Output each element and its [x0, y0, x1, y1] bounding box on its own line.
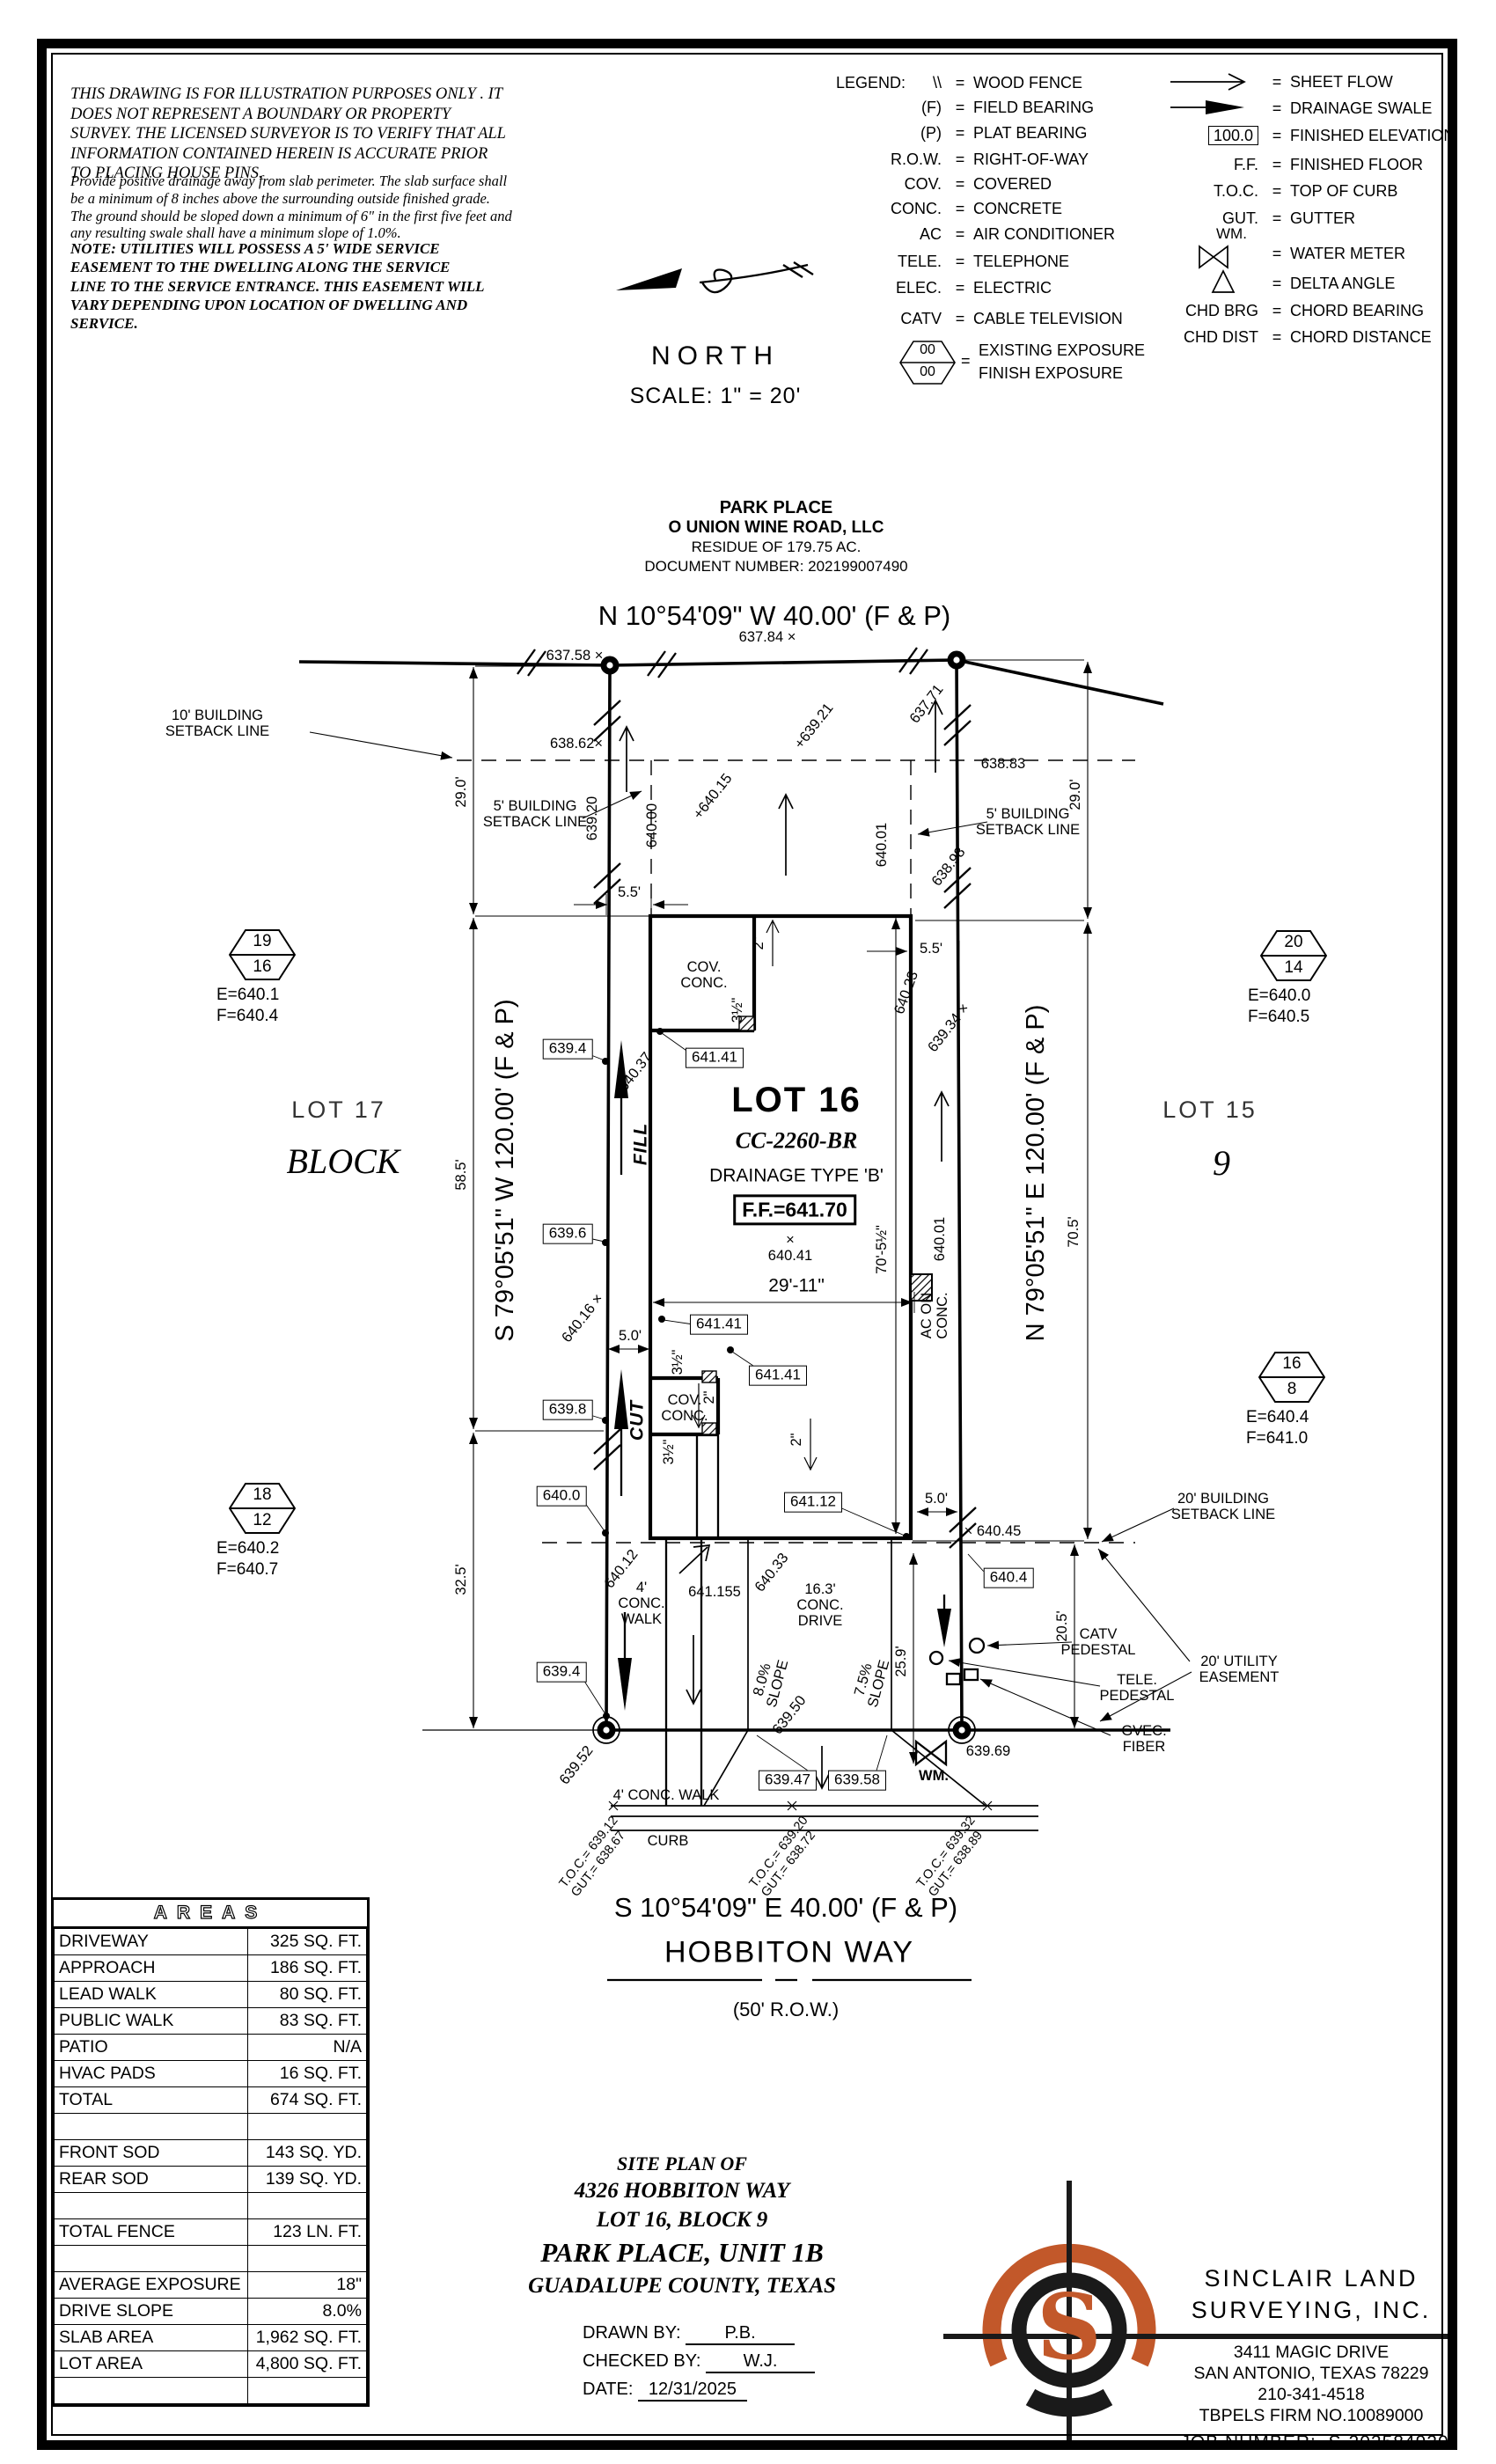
title-subdivision: PARK PLACE, UNIT 1B — [444, 2237, 920, 2269]
areas-row: DRIVEWAY325 SQ. FT. — [55, 1929, 367, 1955]
plat-label: × 640.41 — [768, 1232, 812, 1264]
scale-label: SCALE: 1" = 20' — [630, 384, 802, 409]
adjoiner-document: DOCUMENT NUMBER: 202199007490 — [644, 558, 907, 576]
legend-row: CATVCABLE TELEVISION — [847, 310, 1123, 328]
plat-label: 637.58 × — [546, 648, 604, 664]
legend-sym: CHD DIST — [1160, 328, 1258, 347]
legend-sym: T.O.C. — [1160, 182, 1258, 201]
plat-label: 9 — [1213, 1144, 1230, 1183]
plat-label: 3½" — [670, 1350, 686, 1375]
legend-label: CABLE TELEVISION — [973, 310, 1123, 327]
legend-label: SHEET FLOW — [1290, 73, 1393, 91]
legend-row: TELE.TELEPHONE — [847, 253, 1069, 271]
plat-label: 3½" — [730, 998, 745, 1023]
legend-sym: COV. — [847, 175, 942, 194]
plat-label: N 10°54'09" W 40.00' (F & P) — [598, 601, 951, 631]
areas-row — [55, 2246, 367, 2272]
plat-label: 5.5' — [920, 941, 942, 957]
legend-label: DELTA ANGLE — [1290, 275, 1395, 292]
legend-sym: (F) — [847, 99, 942, 117]
plat-label: FILL — [630, 1123, 650, 1165]
plat-label: CURB — [648, 1833, 689, 1849]
firm-number: TBPELS FIRM NO.10089000 — [1199, 2406, 1424, 2426]
plat-label: 5' BUILDING SETBACK LINE — [976, 806, 1080, 838]
areas-row: HVAC PADS16 SQ. FT. — [55, 2061, 367, 2087]
plat-label: 641.41 — [686, 1048, 744, 1068]
north-arrow-icon — [616, 262, 813, 292]
legend-label: CHORD DISTANCE — [1290, 328, 1432, 346]
existing-elev: E=640.0 — [1248, 986, 1310, 1007]
disclaimer-text: THIS DRAWING IS FOR ILLUSTRATION PURPOSE… — [70, 84, 510, 184]
plat-label: 10' BUILDING SETBACK LINE — [165, 708, 269, 739]
plat-label: COV. CONC. — [680, 959, 727, 991]
plat-label: 640.00 — [644, 803, 660, 847]
plat-label: 70.5' — [1066, 1216, 1082, 1247]
legend-eq: = — [961, 352, 971, 370]
plat-label: 639.8 — [543, 1400, 593, 1420]
legend-row: (F)FIELD BEARING — [847, 99, 1094, 117]
plat-label: 640.01 — [932, 1217, 948, 1261]
legend-row: T.O.C.TOP OF CURB — [1160, 182, 1397, 201]
legend-row: (P)PLAT BEARING — [847, 124, 1087, 143]
areas-row: TOTAL674 SQ. FT. — [55, 2087, 367, 2114]
plat-label: 641.41 — [690, 1315, 748, 1335]
adjoiner-residue: RESIDUE OF 179.75 AC. — [692, 539, 862, 556]
legend-sym: CONC. — [847, 200, 942, 218]
finish-elev: F=640.7 — [216, 1559, 279, 1580]
plat-label: 29'-11" — [768, 1275, 825, 1295]
exposure-marker: 19 16 E=640.1F=640.4 — [229, 928, 296, 981]
title-lot-block: LOT 16, BLOCK 9 — [444, 2208, 920, 2233]
legend-label: WATER METER — [1290, 245, 1405, 262]
finish-elev: F=640.5 — [1248, 1007, 1310, 1028]
title-address: 4326 HOBBITON WAY — [444, 2179, 920, 2204]
areas-row: FRONT SOD143 SQ. YD. — [55, 2140, 367, 2167]
areas-table: AREAS DRIVEWAY325 SQ. FT.APPROACH186 SQ.… — [51, 1897, 370, 2407]
plat-label: 5' BUILDING SETBACK LINE — [483, 798, 587, 830]
wm-sym: WM. — [1216, 225, 1247, 243]
marker-bottom: 8 — [1258, 1380, 1325, 1399]
plat-label: BLOCK — [287, 1142, 400, 1181]
plat-label: 4' CONC. WALK — [618, 1580, 664, 1627]
marker-top: 20 — [1260, 933, 1327, 952]
legend-label: CHORD BEARING — [1290, 302, 1424, 319]
plat-label: 639.4 — [543, 1039, 593, 1060]
legend-label: WOOD FENCE — [973, 74, 1082, 92]
areas-row: LOT AREA4,800 SQ. FT. — [55, 2351, 367, 2378]
marker-bottom: 12 — [229, 1511, 296, 1530]
plat-label: 2" — [751, 936, 766, 950]
plat-label: 58.5' — [453, 1159, 469, 1190]
areas-title: AREAS — [54, 1900, 367, 1928]
firm-phone: 210-341-4518 — [1258, 2385, 1364, 2405]
plat-label: 70'-5½" — [874, 1225, 890, 1274]
title-block: SITE PLAN OF 4326 HOBBITON WAY LOT 16, B… — [444, 2152, 920, 2299]
plat-label: 639.4 — [537, 1662, 587, 1683]
plat-label: 640.4 — [984, 1568, 1034, 1588]
legend-label: AIR CONDITIONER — [973, 225, 1115, 243]
plat-label: 638.62× — [550, 736, 603, 752]
plat-label: F.F.=641.70 — [733, 1194, 856, 1225]
firm-name: SINCLAIR LAND — [1204, 2265, 1418, 2292]
existing-elev: E=640.1 — [216, 985, 279, 1006]
legend-sym: AC — [847, 225, 942, 244]
areas-row: PATION/A — [55, 2035, 367, 2061]
marker-top: 18 — [229, 1485, 296, 1505]
areas-row: PUBLIC WALK83 SQ. FT. — [55, 2008, 367, 2035]
existing-elev: E=640.4 — [1246, 1407, 1309, 1428]
plat-label: 16.3' CONC. DRIVE — [796, 1581, 843, 1629]
job-number: JOB NUMBER: S-202584920 — [1180, 2432, 1448, 2453]
plat-label: 639.20 — [584, 796, 600, 840]
areas-row: REAR SOD139 SQ. YD. — [55, 2167, 367, 2193]
plat-label: 5.0' — [925, 1491, 948, 1507]
legend-sym: CATV — [847, 310, 942, 328]
checked-by-row: CHECKED BY: W.J. — [583, 2351, 815, 2373]
legend-label: DRAINAGE SWALE — [1290, 99, 1432, 117]
finish-elev: F=640.4 — [216, 1006, 279, 1027]
legend-row: WATER METER — [1160, 245, 1405, 263]
exposure-finish: 00 — [899, 364, 956, 380]
areas-row: LEAD WALK80 SQ. FT. — [55, 1982, 367, 2008]
exposure-legend-icon: 00 00 — [899, 340, 956, 385]
legend-label: FIELD BEARING — [973, 99, 1094, 116]
existing-elev: E=640.2 — [216, 1538, 279, 1559]
marker-bottom: 16 — [229, 957, 296, 977]
legend-row: ELEC.ELECTRIC — [847, 279, 1052, 297]
plat-label: 29.0' — [453, 776, 469, 807]
legend-label: GUTTER — [1290, 209, 1355, 227]
plat-label: × 640.45 — [964, 1523, 1022, 1539]
plat-label: 640.01 — [874, 823, 890, 867]
marker-top: 16 — [1258, 1354, 1325, 1374]
plat-label: HOBBITON WAY — [664, 1936, 914, 1969]
areas-row: APPROACH186 SQ. FT. — [55, 1955, 367, 1982]
plat-label: 2" — [788, 1433, 804, 1446]
legend-row: \\WOOD FENCE — [847, 74, 1082, 92]
adjoiner-owner: O UNION WINE ROAD, LLC — [669, 518, 884, 538]
areas-row — [55, 2378, 367, 2404]
legend-label: FINISHED ELEVATION — [1290, 127, 1455, 144]
title-county: GUADALUPE COUNTY, TEXAS — [444, 2274, 920, 2299]
checked-by-value: W.J. — [706, 2351, 815, 2373]
plat-label: 639.47 — [759, 1771, 817, 1791]
legend-sym: R.O.W. — [847, 150, 942, 169]
areas-row — [55, 2193, 367, 2219]
plat-label: CATV PEDESTAL — [1061, 1626, 1136, 1658]
firm-name: SURVEYING, INC. — [1192, 2297, 1432, 2324]
plat-label: 641.155 — [688, 1584, 741, 1600]
plat-label: 32.5' — [453, 1564, 469, 1595]
plat-label: 20' UTILITY EASEMENT — [1199, 1654, 1280, 1685]
legend-sym: CHD BRG — [1160, 302, 1258, 320]
plat-label: LOT 17 — [291, 1097, 386, 1124]
legend-row: R.O.W.RIGHT-OF-WAY — [847, 150, 1089, 169]
wood-fence-icon: \\ — [847, 74, 942, 92]
plat-label: DRAINAGE TYPE 'B' — [709, 1165, 884, 1185]
legend-row: ACAIR CONDITIONER — [847, 225, 1115, 244]
plat-label: 641.12 — [784, 1492, 842, 1513]
plat-label: 641.41 — [749, 1366, 807, 1386]
legend-sym: (P) — [847, 124, 942, 143]
legend-row: 100.0FINISHED ELEVATION — [1160, 127, 1455, 145]
firm-address: 3411 MAGIC DRIVE — [1234, 2343, 1389, 2363]
plat-label: 3½" — [661, 1440, 677, 1465]
plat-label: TELE. PEDESTAL — [1100, 1672, 1175, 1704]
plat-label: LOT 16 — [731, 1081, 862, 1119]
drawn-by-value: P.B. — [686, 2323, 795, 2345]
areas-row: TOTAL FENCE123 LN. FT. — [55, 2219, 367, 2246]
plat-label: N 79°05'51" E 120.00' (F & P) — [1023, 1005, 1051, 1342]
exposure-marker: 16 8 E=640.4F=641.0 — [1258, 1351, 1325, 1404]
legend-row: F.F.FINISHED FLOOR — [1160, 156, 1423, 174]
legend-sym: TELE. — [847, 253, 942, 271]
areas-row: AVERAGE EXPOSURE18" — [55, 2272, 367, 2299]
legend-row: DELTA ANGLE — [1160, 275, 1395, 293]
checked-by-label: CHECKED BY: — [583, 2351, 700, 2371]
plat-label: LOT 15 — [1162, 1097, 1258, 1124]
areas-row — [55, 2114, 367, 2140]
legend-row: SHEET FLOW — [1160, 73, 1393, 92]
date-value: 12/31/2025 — [638, 2380, 747, 2402]
legend-label: CONCRETE — [973, 200, 1062, 217]
plat-label: 639.6 — [543, 1224, 593, 1244]
areas-row: SLAB AREA1,962 SQ. FT. — [55, 2325, 367, 2351]
logo-letter: S — [1037, 2275, 1102, 2380]
plat-label: 4' CONC. WALK — [613, 1787, 720, 1803]
date-label: DATE: — [583, 2380, 633, 2399]
adjoiner-name: PARK PLACE — [720, 498, 833, 518]
legend-row: CHD DISTCHORD DISTANCE — [1160, 328, 1432, 347]
plat-label: S 79°05'51" W 120.00' (F & P) — [492, 999, 520, 1341]
plat-label: CUT — [627, 1400, 647, 1441]
legend-row: COV.COVERED — [847, 175, 1052, 194]
plat-label: S 10°54'09" E 40.00' (F & P) — [614, 1893, 957, 1923]
exposure-existing: 00 — [899, 342, 956, 358]
legend-row: CONC.CONCRETE — [847, 200, 1062, 218]
marker-bottom: 14 — [1260, 958, 1327, 978]
legend-label: COVERED — [973, 175, 1052, 193]
legend-label: PLAT BEARING — [973, 124, 1087, 142]
plat-label: 20' BUILDING SETBACK LINE — [1171, 1491, 1275, 1522]
date-row: DATE: 12/31/2025 — [583, 2380, 747, 2402]
plat-label: 638.83 — [981, 756, 1025, 772]
plat-label: 5.0' — [619, 1328, 642, 1344]
finished-elev-box: 100.0 — [1208, 126, 1258, 145]
legend-label: RIGHT-OF-WAY — [973, 150, 1089, 168]
plat-label: 25.9' — [893, 1646, 909, 1676]
legend-label: ELECTRIC — [973, 279, 1052, 297]
plat-label: 637.84 × — [739, 629, 796, 645]
legend-sym: F.F. — [1160, 156, 1258, 174]
plat-label: CC-2260-BR — [736, 1129, 858, 1155]
plat-label: (50' R.O.W.) — [733, 1999, 839, 2020]
plat-label: GVEC. FIBER — [1121, 1723, 1166, 1755]
north-label: NORTH — [651, 341, 780, 371]
plat-label: 639.69 — [966, 1743, 1010, 1759]
plat-label: 640.0 — [537, 1486, 587, 1507]
marker-top: 19 — [229, 932, 296, 951]
plat-label: WM. — [919, 1768, 949, 1784]
legend-label: FINISH EXPOSURE — [979, 364, 1123, 383]
exposure-marker: 18 12 E=640.2F=640.7 — [229, 1482, 296, 1535]
drawn-by-row: DRAWN BY: P.B. — [583, 2323, 795, 2345]
legend-row: DRAINAGE SWALE — [1160, 99, 1432, 118]
firm-address: SAN ANTONIO, TEXAS 78229 — [1194, 2364, 1429, 2384]
site-plan-sheet: THIS DRAWING IS FOR ILLUSTRATION PURPOSE… — [0, 0, 1496, 2464]
legend-row: GUT.GUTTER — [1160, 209, 1355, 228]
plat-label: AC ON CONC. — [919, 1292, 950, 1338]
legend-row: CHD BRGCHORD BEARING — [1160, 302, 1424, 320]
drainage-note: Provide positive drainage away from slab… — [70, 172, 515, 242]
finish-elev: F=641.0 — [1246, 1428, 1309, 1449]
legend-label: FINISHED FLOOR — [1290, 156, 1423, 173]
plat-label: 5.5' — [618, 884, 641, 900]
utility-easement-note: NOTE: UTILITIES WILL POSSESS A 5' WIDE S… — [70, 239, 488, 333]
legend-label: TOP OF CURB — [1290, 182, 1397, 200]
drawn-by-label: DRAWN BY: — [583, 2323, 681, 2343]
exposure-marker: 20 14 E=640.0F=640.5 — [1260, 929, 1327, 982]
plat-label: 639.58 — [828, 1771, 886, 1791]
legend-label: TELEPHONE — [973, 253, 1069, 270]
plat-label: 2" — [701, 1390, 717, 1404]
title-line: SITE PLAN OF — [444, 2152, 920, 2175]
legend-label: EXISTING EXPOSURE — [979, 341, 1145, 360]
areas-row: DRIVE SLOPE8.0% — [55, 2299, 367, 2325]
legend-sym: ELEC. — [847, 279, 942, 297]
